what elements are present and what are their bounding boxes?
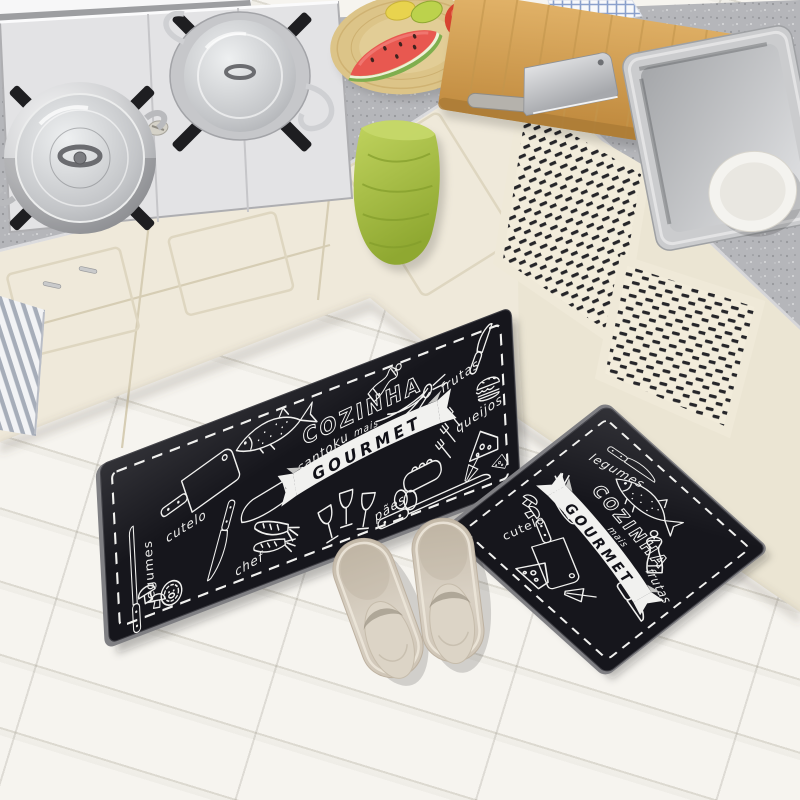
kitchen-scene-photo: legumes cutelo santoku chef frutas queij…	[0, 0, 800, 800]
gas-stove	[0, 2, 352, 234]
slippers-pair	[324, 514, 499, 698]
